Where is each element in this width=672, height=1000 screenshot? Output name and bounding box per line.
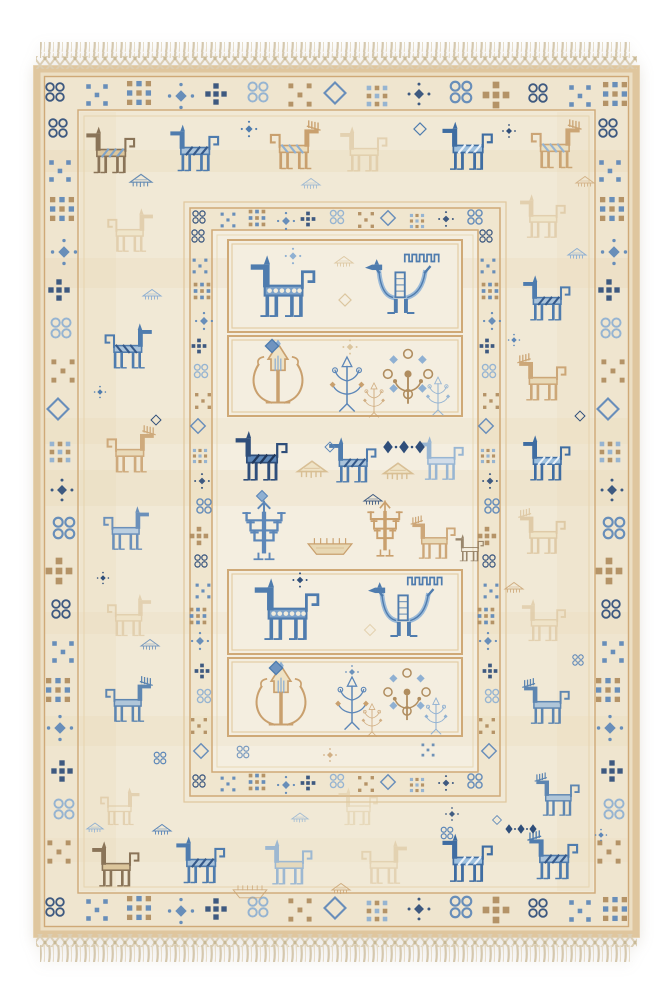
geo-cluster-grid9: [603, 897, 627, 921]
geo-cluster-grid9: [194, 283, 211, 300]
geo-cluster-grid9: [249, 210, 266, 227]
geo-cluster-grid9: [478, 608, 495, 625]
geo-cluster-grid9: [193, 449, 207, 463]
rug-photo: [0, 0, 672, 1000]
geo-cluster-grid9: [481, 449, 495, 463]
geo-cluster-grid9: [46, 678, 70, 702]
rug-photo-svg: [0, 0, 672, 1000]
fringe-bottom-tassel: [40, 945, 633, 962]
geo-cluster-grid9: [600, 442, 621, 463]
geo-cluster-grid9: [127, 896, 151, 920]
geo-cluster-grid9: [482, 283, 499, 300]
geo-cluster-grid9: [603, 82, 627, 106]
geo-cluster-grid9: [600, 197, 624, 221]
geo-cluster-grid9: [596, 678, 620, 702]
geo-cluster-grid9: [190, 608, 207, 625]
geo-cluster-grid9: [367, 86, 388, 107]
geo-cluster-grid9: [249, 774, 266, 791]
geo-cluster-grid9: [367, 901, 388, 922]
fringe-top-tassel: [40, 42, 633, 58]
geo-cluster-grid9: [410, 778, 424, 792]
geo-cluster-grid9: [50, 442, 71, 463]
geo-cluster-grid9: [410, 214, 424, 228]
fringe-top-mesh: [36, 56, 637, 69]
geo-cluster-grid9: [127, 81, 151, 105]
geo-cluster-grid9: [50, 197, 74, 221]
motif-diamonds3: [383, 441, 425, 454]
field-panel: [228, 336, 462, 416]
